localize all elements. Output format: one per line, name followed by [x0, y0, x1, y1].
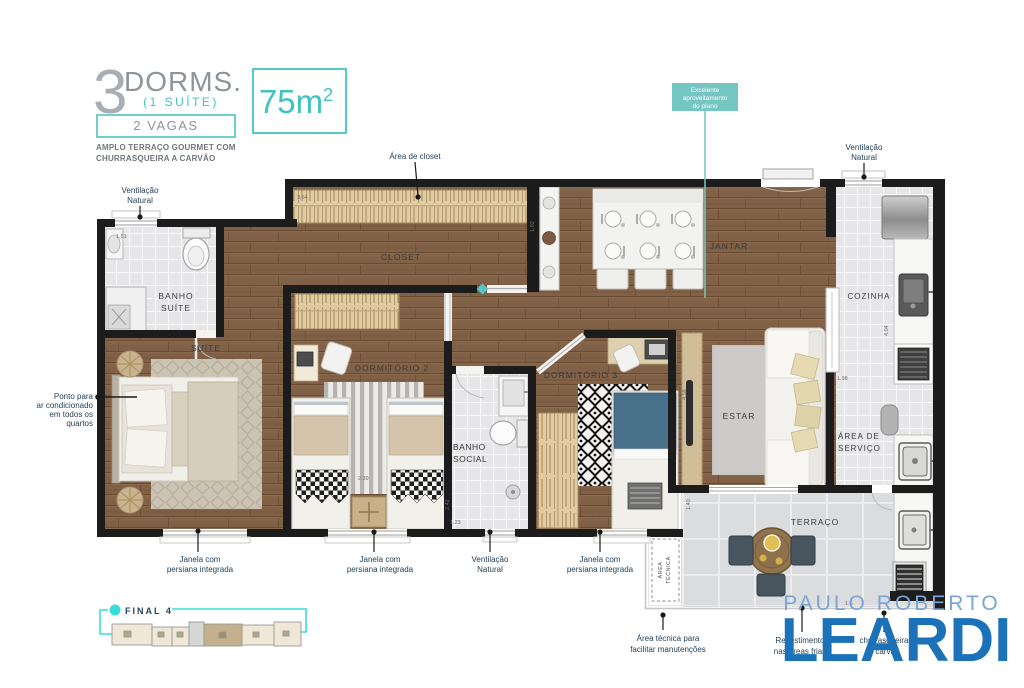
- svg-text:Janela com: Janela com: [360, 555, 401, 564]
- svg-text:2.71: 2.71: [588, 514, 599, 520]
- svg-text:4.63: 4.63: [288, 278, 299, 284]
- svg-text:em todos os: em todos os: [49, 410, 93, 419]
- svg-text:4.58: 4.58: [682, 389, 688, 400]
- svg-text:persiana integrada: persiana integrada: [347, 565, 414, 574]
- svg-text:(1 SUÍTE): (1 SUÍTE): [143, 94, 219, 109]
- svg-text:3: 3: [93, 58, 127, 127]
- svg-text:1.98: 1.98: [837, 376, 848, 382]
- svg-text:2.42: 2.42: [445, 499, 451, 510]
- svg-text:CHURRASQUEIRA A CARVÃO: CHURRASQUEIRA A CARVÃO: [96, 154, 215, 163]
- svg-text:4.04: 4.04: [884, 325, 890, 336]
- svg-text:SERVIÇO: SERVIÇO: [838, 444, 881, 453]
- svg-text:ÁREA: ÁREA: [657, 562, 664, 579]
- svg-text:FINAL 4: FINAL 4: [125, 606, 173, 616]
- svg-text:Excelente: Excelente: [691, 87, 720, 94]
- svg-text:2.71: 2.71: [152, 515, 163, 521]
- svg-text:Área de closet: Área de closet: [389, 152, 441, 161]
- svg-text:2.42: 2.42: [454, 345, 460, 356]
- svg-text:do plano: do plano: [693, 103, 718, 110]
- svg-text:AMPLO TERRAÇO GOURMET COM: AMPLO TERRAÇO GOURMET COM: [96, 143, 236, 152]
- svg-text:aproveitamento: aproveitamento: [683, 95, 728, 102]
- svg-text:TÉCNICA: TÉCNICA: [665, 556, 672, 584]
- svg-text:quartos: quartos: [66, 419, 93, 428]
- svg-text:Janela com: Janela com: [180, 555, 221, 564]
- svg-text:1.51: 1.51: [116, 234, 127, 240]
- svg-text:2.39: 2.39: [358, 476, 369, 482]
- svg-text:BANHO: BANHO: [158, 291, 193, 301]
- svg-text:Natural: Natural: [851, 153, 877, 162]
- svg-text:SUÍTE: SUÍTE: [191, 343, 221, 353]
- svg-text:Ventilação: Ventilação: [846, 143, 883, 152]
- svg-text:TERRAÇO: TERRAÇO: [791, 517, 840, 527]
- svg-text:Ventilação: Ventilação: [472, 555, 509, 564]
- svg-text:persiana integrada: persiana integrada: [567, 565, 634, 574]
- svg-text:SOCIAL: SOCIAL: [453, 454, 487, 464]
- svg-text:75m2: 75m2: [259, 83, 333, 120]
- svg-text:BANHO: BANHO: [453, 442, 486, 452]
- svg-text:DORMITÓRIO 3: DORMITÓRIO 3: [544, 370, 618, 380]
- svg-text:Ventilação: Ventilação: [122, 186, 159, 195]
- svg-text:Janela com: Janela com: [580, 555, 621, 564]
- svg-text:CLOSET: CLOSET: [381, 252, 421, 262]
- svg-text:1.23: 1.23: [450, 520, 461, 526]
- svg-text:2 VAGAS: 2 VAGAS: [133, 118, 198, 133]
- svg-text:DORMITÓRIO 2: DORMITÓRIO 2: [355, 363, 429, 373]
- svg-text:ESTAR: ESTAR: [723, 411, 756, 421]
- svg-text:1.92: 1.92: [530, 221, 536, 232]
- svg-text:facilitar manutenções: facilitar manutenções: [630, 645, 706, 654]
- svg-text:COZINHA: COZINHA: [848, 292, 891, 301]
- svg-text:JANTAR: JANTAR: [710, 241, 748, 251]
- svg-text:Ponto para: Ponto para: [54, 392, 94, 401]
- svg-text:Natural: Natural: [127, 196, 153, 205]
- svg-text:DORMS.: DORMS.: [124, 66, 242, 97]
- svg-text:Área técnica para: Área técnica para: [637, 634, 700, 643]
- svg-text:1.40: 1.40: [686, 499, 692, 510]
- svg-text:ar condicionado: ar condicionado: [37, 401, 94, 410]
- svg-text:4.42: 4.42: [569, 188, 580, 194]
- svg-text:LEARDI: LEARDI: [781, 606, 1012, 675]
- svg-text:SUÍTE: SUÍTE: [161, 303, 191, 313]
- svg-text:ÁREA DE: ÁREA DE: [838, 432, 880, 441]
- svg-text:persiana integrada: persiana integrada: [167, 565, 234, 574]
- svg-text:3.64: 3.64: [297, 195, 308, 201]
- svg-text:Natural: Natural: [477, 565, 503, 574]
